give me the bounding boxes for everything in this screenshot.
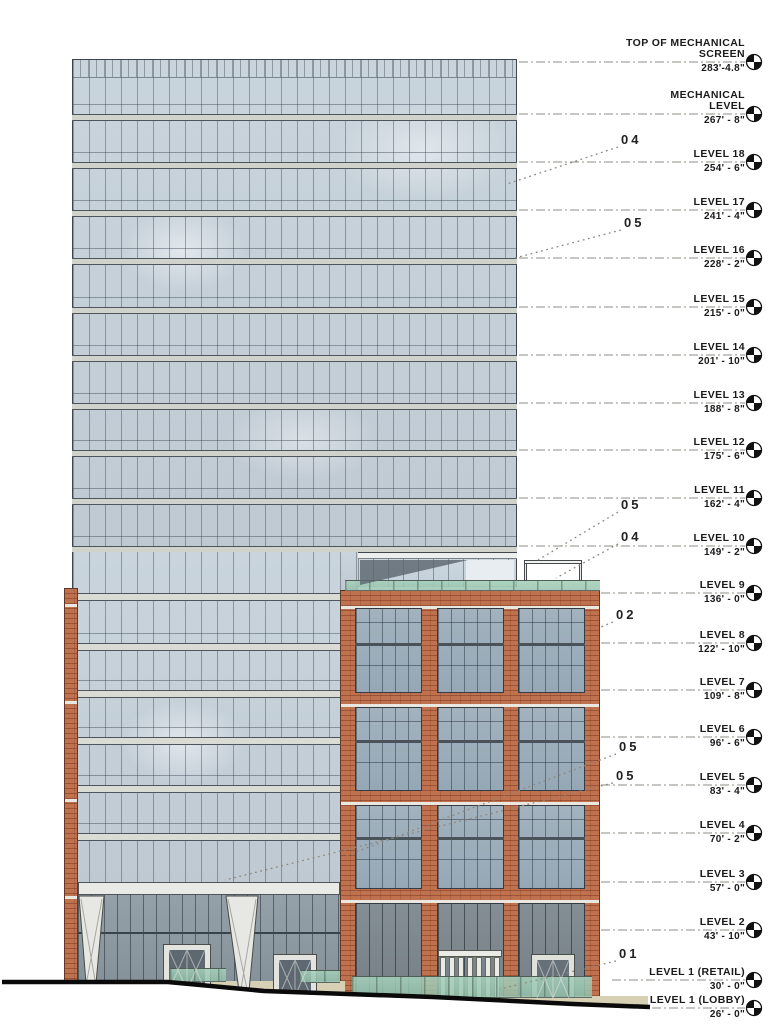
level-label: LEVEL 6 <box>700 724 745 735</box>
window-muntin <box>355 622 422 623</box>
callout-number: 05 <box>619 740 639 754</box>
transom-line <box>72 775 340 776</box>
datum-icon <box>747 107 762 122</box>
window-muntin <box>518 762 585 763</box>
level-label: LEVEL 10 <box>694 533 745 544</box>
datum-icon <box>747 778 762 793</box>
brick-sill-band <box>65 896 77 899</box>
level-elevation: 57' - 0" <box>710 883 745 894</box>
brick-sill-band <box>65 604 77 607</box>
window-muntin <box>437 721 504 722</box>
podium-window <box>437 805 504 889</box>
level-label: LEVEL 12 <box>694 437 745 448</box>
level-elevation: 96' - 6" <box>710 738 745 749</box>
window-muntin <box>355 762 422 763</box>
window-muntin <box>355 721 422 722</box>
level-elevation: 43' - 10" <box>704 931 745 942</box>
window-transom <box>518 837 585 840</box>
level-elevation: 241' - 4" <box>704 211 745 222</box>
level-label: LEVEL 14 <box>694 342 745 353</box>
level-elevation: 109' - 8" <box>704 691 745 702</box>
window-muntin <box>437 622 504 623</box>
callout-number: 05 <box>621 498 641 512</box>
datum-icon <box>747 586 762 601</box>
datum-icon <box>747 683 762 698</box>
window-muntin <box>355 665 422 666</box>
transom-line <box>72 680 340 681</box>
window-muntin <box>437 819 504 820</box>
podium-window <box>355 707 422 791</box>
window-muntin <box>437 859 504 860</box>
datum-icon <box>747 251 762 266</box>
mechanical-screen-rail <box>72 77 517 78</box>
floor-spandrel <box>72 690 340 698</box>
window-muntin <box>518 622 585 623</box>
level-label: LEVEL 5 <box>700 772 745 783</box>
brick-sill-band <box>65 701 77 704</box>
window-muntin <box>518 665 585 666</box>
datum-icon <box>747 443 762 458</box>
callout-number: 05 <box>624 216 644 230</box>
floor-spandrel <box>72 785 340 793</box>
penthouse-fascia <box>358 552 517 559</box>
glass-guardrail <box>300 970 340 983</box>
floor-spandrel <box>72 355 517 362</box>
brick-sill-band <box>65 799 77 802</box>
window-muntin <box>437 665 504 666</box>
level-label: LEVEL 9 <box>700 580 745 591</box>
datum-icon <box>747 348 762 363</box>
transom-line <box>72 823 340 824</box>
level-elevation: 188' - 8" <box>704 404 745 415</box>
callout-leader-line <box>507 147 618 184</box>
level-elevation: 228' - 2" <box>704 259 745 270</box>
level-label: LEVEL 13 <box>694 390 745 401</box>
level-elevation: 175' - 6" <box>704 451 745 462</box>
level-elevation: 149' - 2" <box>704 547 745 558</box>
level-elevation: 162' - 4" <box>704 499 745 510</box>
transom-line <box>72 440 517 441</box>
floor-spandrel <box>72 210 517 217</box>
level-label: LEVEL 11 <box>694 485 745 496</box>
floor-spandrel <box>72 833 340 841</box>
entry-canopy <box>78 882 340 895</box>
window-muntin <box>518 721 585 722</box>
window-transom <box>355 837 422 840</box>
podium-window <box>437 707 504 791</box>
transom-line <box>72 488 517 489</box>
transom-line <box>72 297 517 298</box>
level-elevation: 122' - 10" <box>698 644 745 655</box>
floor-spandrel <box>72 258 517 265</box>
door-header <box>438 950 502 957</box>
window-transom <box>518 643 585 646</box>
terrace-guardrail <box>345 580 600 591</box>
datum-icon <box>747 203 762 218</box>
floor-spandrel <box>72 114 517 121</box>
level-label: LEVEL 17 <box>694 197 745 208</box>
floor-spandrel <box>72 162 517 169</box>
datum-icon <box>747 826 762 841</box>
callout-leader-line <box>538 512 618 560</box>
podium-window <box>518 805 585 889</box>
datum-icon <box>747 923 762 938</box>
window-transom <box>437 643 504 646</box>
floor-spandrel <box>72 403 517 410</box>
level-label: LEVEL 16 <box>694 245 745 256</box>
datum-icon <box>747 636 762 651</box>
datum-icon <box>747 55 762 70</box>
datum-icon <box>747 539 762 554</box>
level-label: LEVEL 15 <box>694 294 745 305</box>
callout-number: 05 <box>616 769 636 783</box>
datum-icon <box>747 491 762 506</box>
floor-spandrel <box>72 307 517 314</box>
floor-spandrel <box>72 593 340 601</box>
datum-icon <box>747 1001 762 1016</box>
callout-number: 04 <box>621 133 641 147</box>
window-transom <box>355 643 422 646</box>
transom-line <box>72 104 517 105</box>
storefront-transom <box>78 932 340 934</box>
level-label: LEVEL 1 (RETAIL) <box>649 967 745 978</box>
level-elevation: 267' - 8" <box>704 115 745 126</box>
podium-window <box>518 707 585 791</box>
level-label: TOP OF MECHANICAL SCREEN <box>626 38 745 60</box>
transom-line <box>72 393 517 394</box>
datum-icon <box>747 155 762 170</box>
window-transom <box>437 740 504 743</box>
podium-window <box>518 608 585 693</box>
transom-line <box>72 633 340 634</box>
transom-line <box>72 345 517 346</box>
level-elevation: 254' - 6" <box>704 163 745 174</box>
datum-icon <box>747 730 762 745</box>
window-muntin <box>518 859 585 860</box>
transom-line <box>72 248 517 249</box>
level-label: LEVEL 2 <box>700 917 745 928</box>
datum-icon <box>747 875 762 890</box>
level-label: LEVEL 1 (LOBBY) <box>650 995 745 1006</box>
window-transom <box>518 740 585 743</box>
callout-number: 02 <box>616 608 636 622</box>
callout-leader-line <box>601 622 613 627</box>
level-label: LEVEL 8 <box>700 630 745 641</box>
level-label: LEVEL 7 <box>700 677 745 688</box>
level-elevation: 283'-4.8" <box>701 63 745 74</box>
level-label: LEVEL 4 <box>700 820 745 831</box>
trellis-beam <box>524 560 582 564</box>
tower-curtain-wall <box>72 59 517 552</box>
window-muntin <box>355 859 422 860</box>
window-transom <box>355 740 422 743</box>
callout-number: 01 <box>619 947 639 961</box>
callout-number: 04 <box>621 530 641 544</box>
floor-spandrel <box>72 737 340 745</box>
podium-window <box>437 608 504 693</box>
level-elevation: 215' - 0" <box>704 308 745 319</box>
transom-line <box>72 536 517 537</box>
datum-icon <box>747 396 762 411</box>
datum-icon <box>747 300 762 315</box>
elevation-drawing: TOP OF MECHANICAL SCREEN283'-4.8"MECHANI… <box>0 0 777 1027</box>
floor-spandrel <box>72 450 517 457</box>
level-elevation: 83' - 4" <box>710 786 745 797</box>
level-elevation: 201' - 10" <box>698 356 745 367</box>
transom-line <box>72 152 517 153</box>
mechanical-screen <box>72 59 517 77</box>
level-elevation: 30' - 0" <box>710 981 745 992</box>
floor-spandrel <box>72 498 517 505</box>
floor-spandrel <box>72 643 340 651</box>
level-label: LEVEL 3 <box>700 869 745 880</box>
podium-window <box>355 805 422 889</box>
transom-line <box>72 200 517 201</box>
glass-guardrail <box>352 976 592 998</box>
window-muntin <box>437 762 504 763</box>
datum-icon <box>747 973 762 988</box>
window-transom <box>437 837 504 840</box>
level-label: LEVEL 18 <box>694 149 745 160</box>
level-elevation: 70' - 2" <box>710 834 745 845</box>
transom-line <box>72 727 340 728</box>
level-label: MECHANICAL LEVEL <box>670 90 745 112</box>
level-elevation: 136' - 0" <box>704 594 745 605</box>
glass-guardrail <box>170 968 226 982</box>
window-muntin <box>355 819 422 820</box>
window-muntin <box>518 819 585 820</box>
callout-leader-line <box>515 230 621 258</box>
podium-window <box>355 608 422 693</box>
left-brick-pier <box>64 588 78 982</box>
level-elevation: 26' - 0" <box>710 1009 745 1020</box>
